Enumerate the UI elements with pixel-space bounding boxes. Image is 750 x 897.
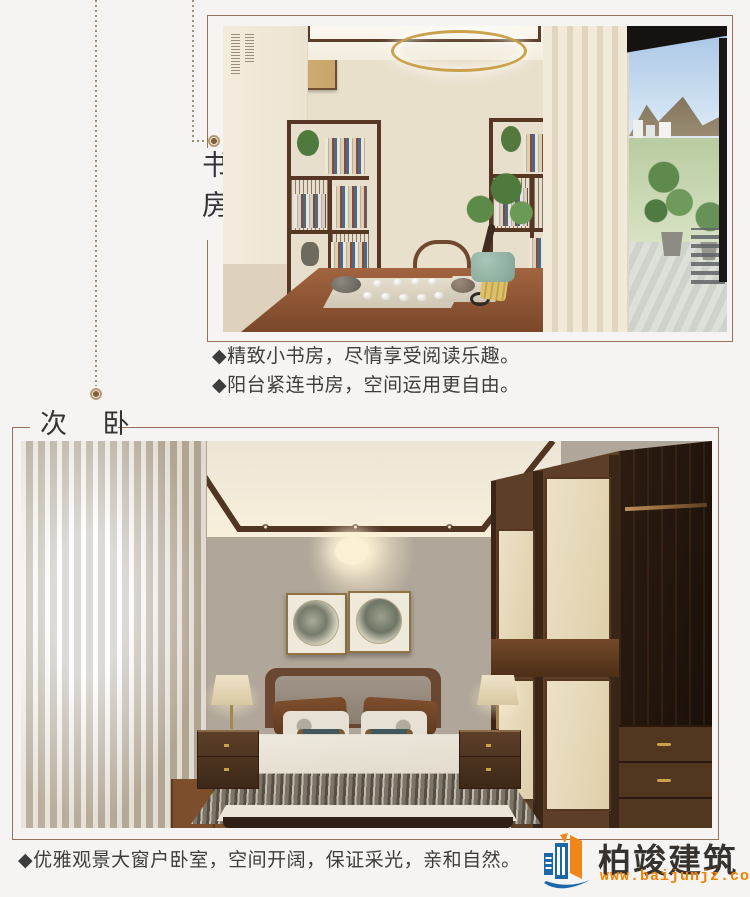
lamp-stem <box>496 705 499 729</box>
study-description: ◆精致小书房，尽情享受阅读乐趣。 ◆阳台紧连书房，空间运用更自由。 <box>212 342 520 400</box>
plant <box>297 130 319 156</box>
building <box>646 125 655 138</box>
teapot <box>331 276 361 293</box>
stone-decor <box>301 242 319 266</box>
wardrobe <box>491 441 712 828</box>
hanging-rod <box>625 503 707 511</box>
balcony-plant <box>643 152 695 236</box>
clay-teapot <box>451 278 475 293</box>
spotlight <box>445 524 454 530</box>
sliding-door-panel <box>545 679 611 811</box>
window-frame-side <box>719 38 727 282</box>
study-bullet-1: ◆精致小书房，尽情享受阅读乐趣。 <box>212 342 520 371</box>
bedroom-curtains <box>21 441 207 828</box>
door-wood-band <box>491 639 619 677</box>
dotted-guide-elbow <box>192 140 208 142</box>
study-photo: 茶道 <box>223 26 727 332</box>
bed-frame <box>223 817 513 828</box>
table-lamp-left <box>211 675 253 705</box>
sliding-door-panel <box>545 477 611 643</box>
bedroom-bullet: ◆优雅观景大窗户卧室，空间开阔，保证采光，亲和自然。 <box>18 846 521 875</box>
anchor-dot-icon <box>90 388 102 400</box>
study-bullet-2: ◆阳台紧连书房，空间运用更自由。 <box>212 371 520 400</box>
dotted-guide-line-top <box>192 0 194 140</box>
balcony-window <box>629 26 727 332</box>
dotted-guide-line-left <box>95 0 97 386</box>
spotlight <box>351 524 360 530</box>
bedroom-photo <box>21 441 712 828</box>
sliding-door-panel <box>497 529 535 643</box>
building <box>659 122 671 138</box>
bedroom-section-label: 次 卧 <box>40 402 144 441</box>
wall-art-right <box>348 591 411 653</box>
table-lamp-right <box>477 675 519 705</box>
drawer-handle <box>657 779 671 782</box>
nightstand-left <box>197 730 259 789</box>
open-wardrobe-section <box>619 441 712 828</box>
spotlight <box>261 524 270 530</box>
curtain <box>543 26 629 332</box>
nightstand-right <box>459 730 521 789</box>
page: 书房 <box>0 0 750 897</box>
wall-art-left <box>286 593 347 655</box>
company-logo-icon <box>538 833 596 891</box>
celadon-pot <box>471 252 515 282</box>
company-website: www.baijunjz.com <box>600 868 750 885</box>
drawer-handle <box>657 743 671 746</box>
wardrobe-drawers <box>619 725 712 828</box>
wall-lamp-glow <box>335 537 369 565</box>
building <box>633 120 643 138</box>
lamp-stem <box>230 705 233 729</box>
ring-pendant-lamp <box>391 30 527 72</box>
plant <box>501 126 521 152</box>
bonsai-foliage <box>459 172 535 232</box>
